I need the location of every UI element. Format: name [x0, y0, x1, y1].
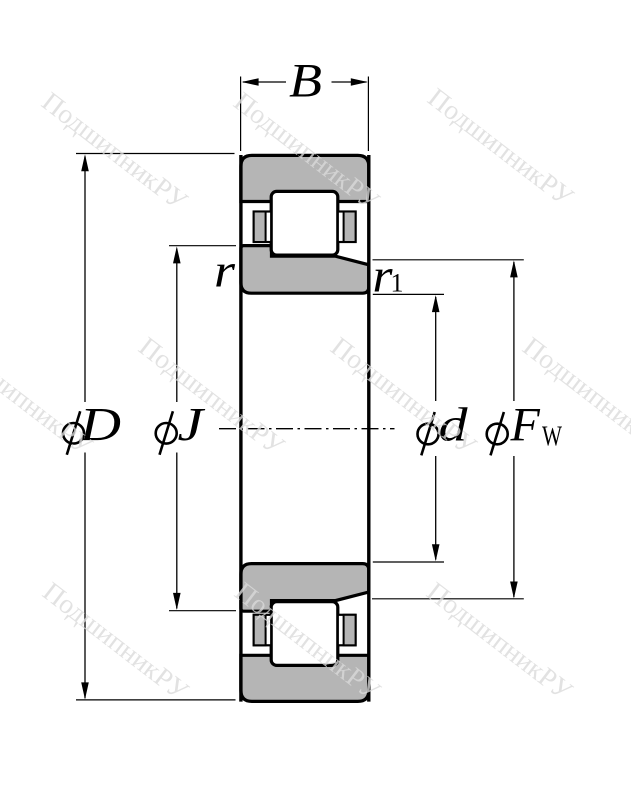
svg-text:r: r — [214, 245, 235, 298]
svg-text:W: W — [542, 421, 562, 453]
svg-text:F: F — [510, 399, 541, 452]
svg-text:1: 1 — [391, 269, 404, 298]
svg-text:B: B — [289, 55, 322, 108]
